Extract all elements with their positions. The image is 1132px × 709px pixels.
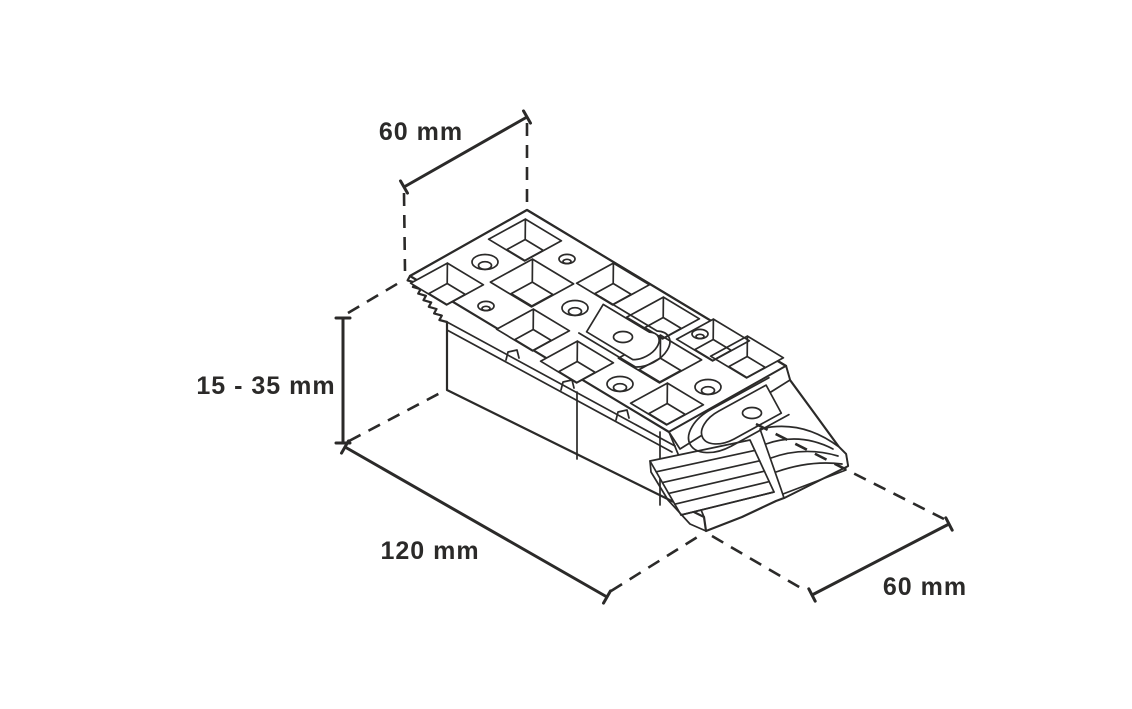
dimension-label: 15 - 35 mm: [196, 372, 335, 400]
dimension-label: 120 mm: [380, 537, 479, 565]
dimension-line: [336, 318, 350, 443]
extension-lines: [348, 281, 442, 441]
dimension-label: 60 mm: [379, 118, 463, 146]
drawing-canvas: 60 mm 15 - 35 mm 120 mm 60 mm: [0, 0, 1132, 709]
extension-lines: [611, 536, 699, 591]
dimension-label: 60 mm: [883, 573, 967, 601]
u-tab-hole: [614, 332, 633, 343]
dimension-line: [342, 441, 611, 603]
levelling-wedge-technical-diagram: 60 mm 15 - 35 mm 120 mm 60 mm: [0, 0, 1132, 709]
u-tab-hole: [743, 408, 762, 419]
wedge-drawing: [408, 210, 848, 531]
dimension-height-range: 15 - 35 mm: [196, 281, 442, 443]
